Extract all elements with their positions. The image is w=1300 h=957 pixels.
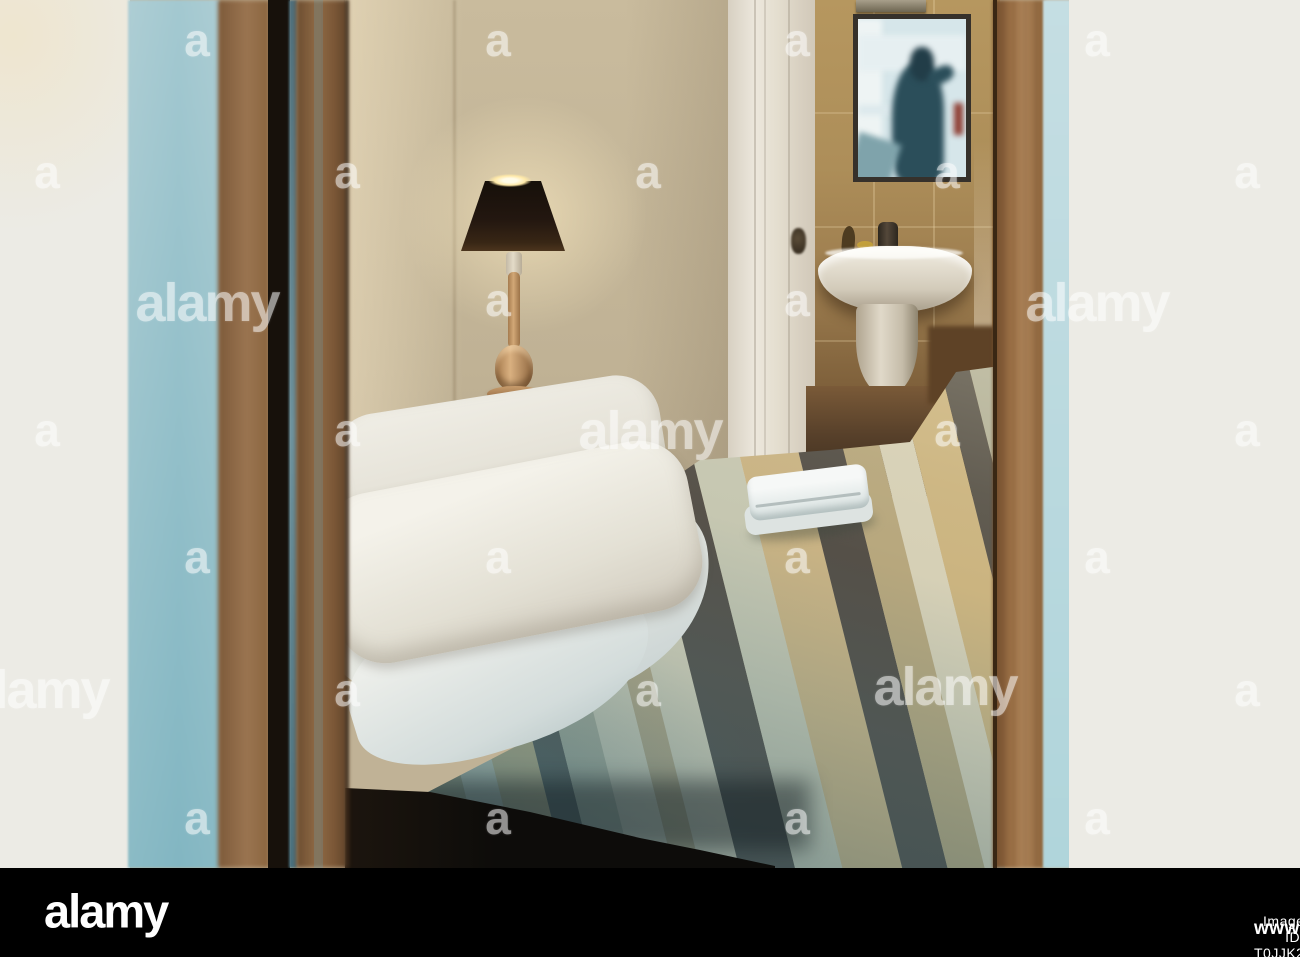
caption-bar: alamy Image ID: T0JJK2 www.alamy.com [0,868,1300,957]
door-handle [791,228,806,254]
door-panel-line [754,0,756,480]
foreground-wall-left [0,0,130,868]
alamy-logo: alamy [44,883,167,938]
door-frame-dark-gap [268,0,290,868]
website-text: www.alamy.com [1254,918,1300,940]
mirror-light-fixture [856,0,926,12]
door-frame-left-outer [218,0,270,868]
sink-rim-highlight [825,247,963,259]
blue-wall-strip-left [128,0,220,868]
lamp-stem [508,272,520,348]
bedroom-photo: aaaaaaaaaaaaaaaaaaaaaaaaaaalamyalamyalam… [0,0,1300,868]
lamp-glowing-rim [482,172,538,189]
sink-pedestal [856,304,918,396]
stock-photo-page: aaaaaaaaaaaaaaaaaaaaaaaaaaalamyalamyalam… [0,0,1300,957]
bathroom-mirror [853,14,971,182]
mirror-red-detail [954,103,963,135]
blue-wall-strip-right [1043,0,1071,868]
door-frame-right [993,0,1045,868]
door-panel-line [764,0,766,480]
lamp-baluster [495,345,533,391]
foreground-wall-warm-light [0,0,130,300]
door-frame-right-edge [993,0,997,868]
white-door-panel [728,0,818,480]
door-panel-line [788,0,790,480]
door-frame-reflection-streak [314,0,323,868]
mirror-reflection [858,19,966,177]
foreground-wall-right [1069,0,1300,868]
door-frame-inner-edge [345,0,349,868]
lamp-shade [461,178,565,254]
